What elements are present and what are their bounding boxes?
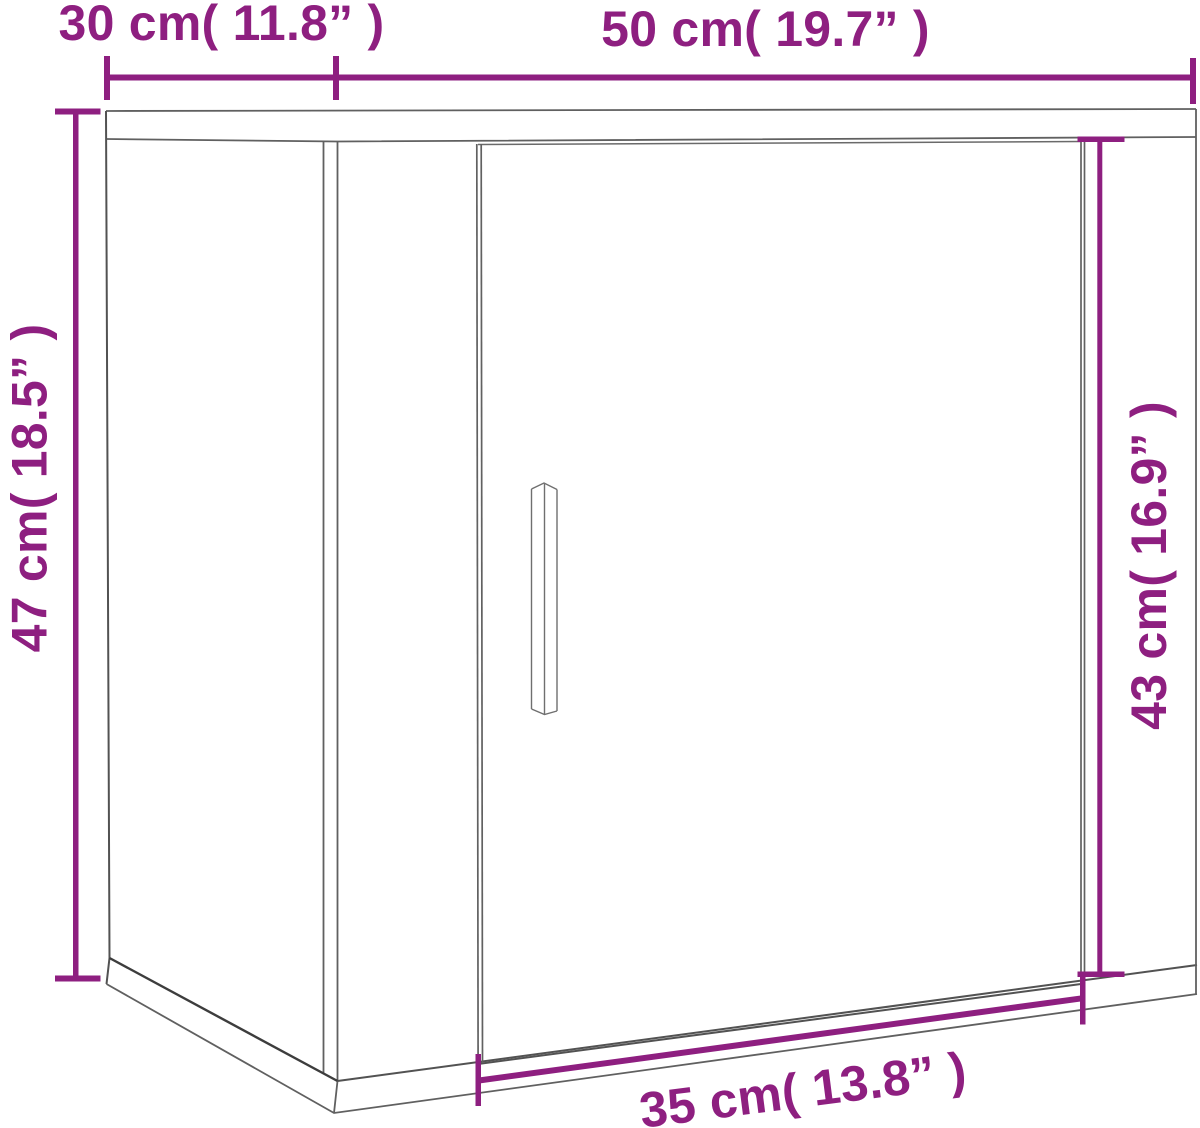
svg-text:43 cm( 16.9” ): 43 cm( 16.9” ) — [1121, 401, 1177, 730]
svg-text:50 cm( 19.7” ): 50 cm( 19.7” ) — [601, 1, 930, 57]
svg-text:47 cm( 18.5” ): 47 cm( 18.5” ) — [2, 324, 58, 653]
svg-text:30 cm( 11.8” ): 30 cm( 11.8” ) — [59, 0, 385, 51]
